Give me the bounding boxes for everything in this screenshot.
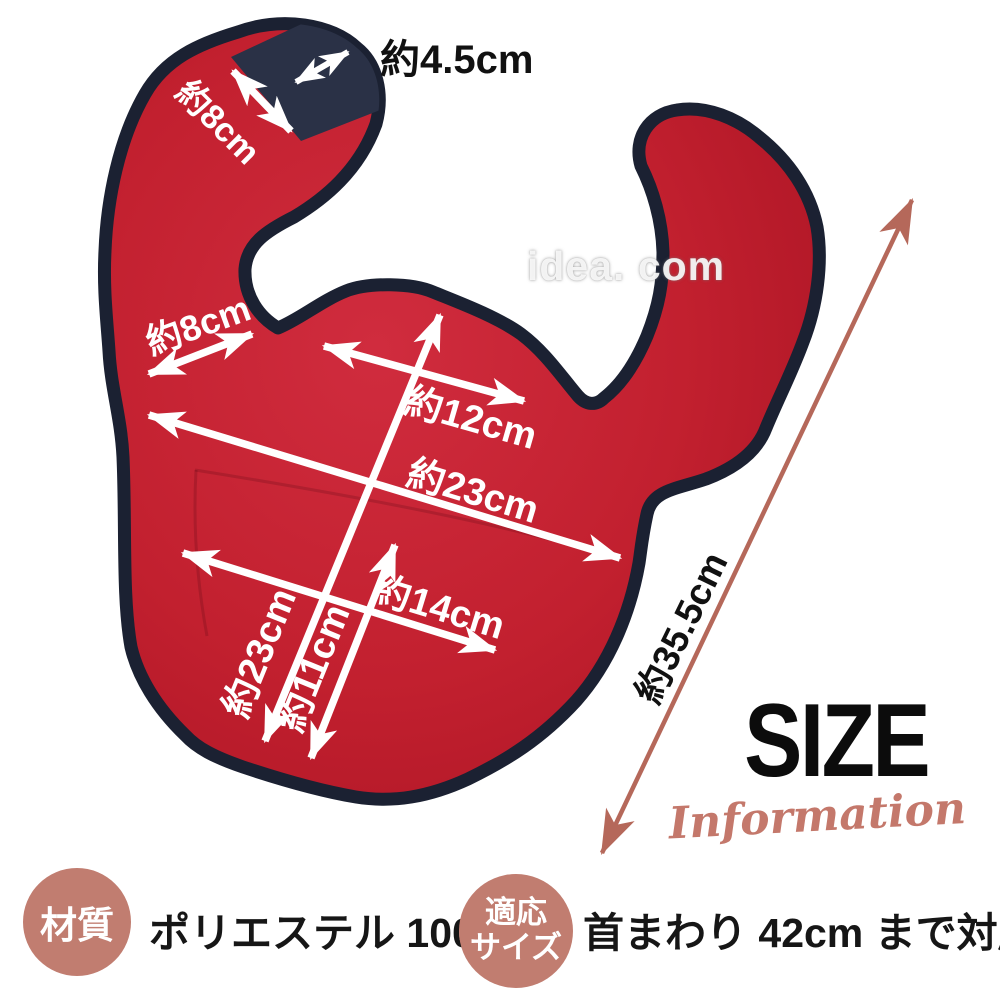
fit-size-badge-line1: 適応 [485, 896, 547, 931]
material-badge-label: 材質 [40, 895, 114, 949]
material-value: ポリエステル 100% [149, 899, 511, 959]
watermark-text: idea. com [527, 243, 725, 290]
fit-size-value: 首まわり 42cm まで対応 [583, 899, 1000, 959]
size-information-graphic: 約4.5cm 約8cm 約8cm 約12cm 約23cm 約14cm 約23cm… [0, 0, 1000, 1000]
bib-illustration: 約4.5cm 約8cm 約8cm 約12cm 約23cm 約14cm 約23cm… [0, 0, 1000, 1000]
dim-label-velcro-width: 約4.5cm [380, 38, 533, 82]
size-title: SIZE [744, 700, 928, 783]
material-badge: 材質 [23, 868, 131, 976]
fit-size-badge-line2: サイズ [470, 931, 562, 966]
fit-size-badge: 適応 サイズ [459, 874, 573, 988]
